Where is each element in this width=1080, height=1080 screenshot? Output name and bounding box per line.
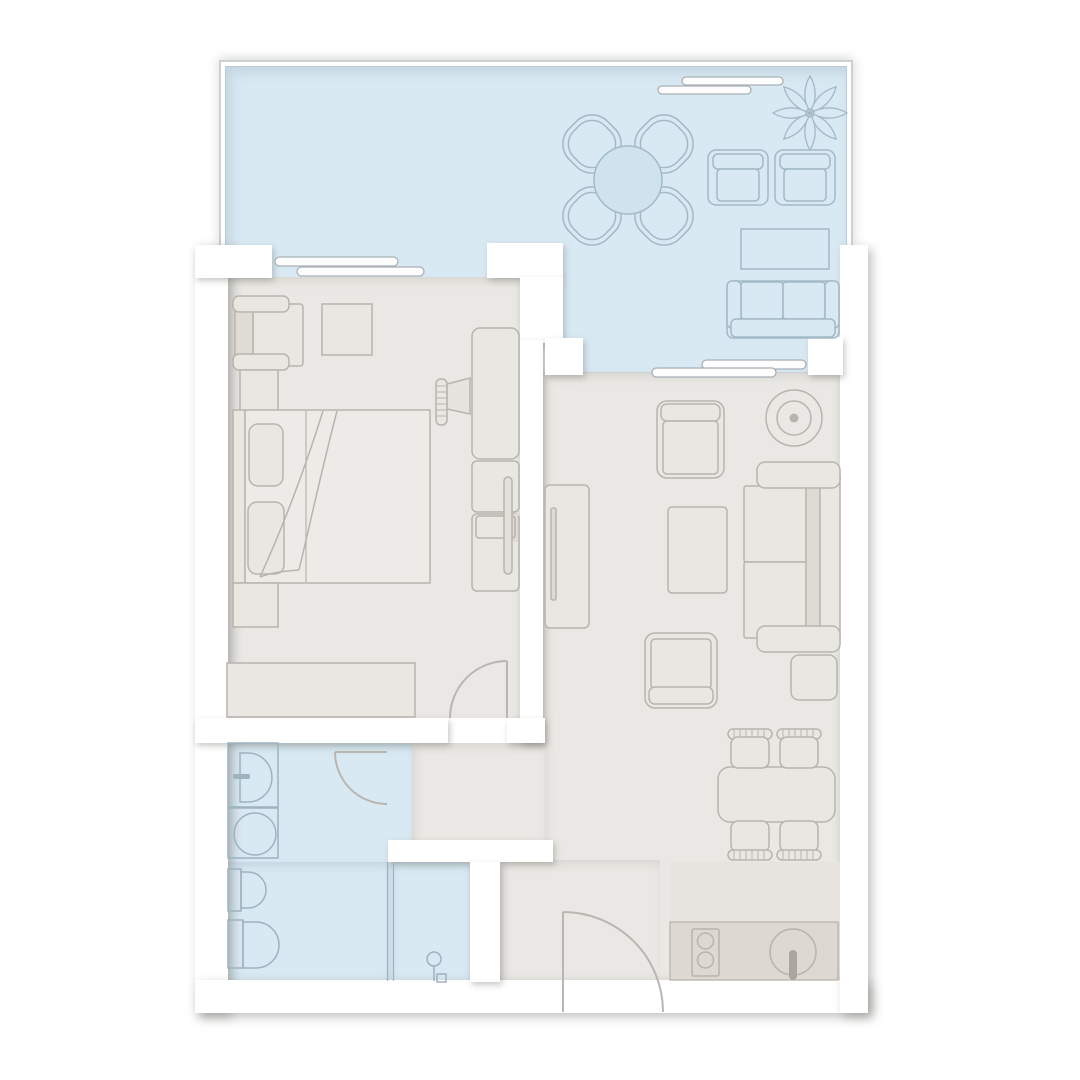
room-bathroom-floor xyxy=(227,743,412,863)
room-entry-floor xyxy=(500,860,660,982)
wall-bedroom-top xyxy=(195,245,272,278)
wall-stub-left xyxy=(545,338,583,375)
wall-bottom xyxy=(195,980,868,1013)
room-bathroom-floor2 xyxy=(227,862,388,982)
wall-divider-upper xyxy=(520,277,563,343)
room-hallway-floor xyxy=(412,743,545,842)
wall-divider-lower xyxy=(520,340,543,743)
wall-bedroom-bathroom xyxy=(195,718,448,743)
shower-floor xyxy=(388,862,470,982)
wall-left xyxy=(195,245,228,1013)
room-bedroom-floor xyxy=(228,277,520,718)
wall-hall-band xyxy=(388,840,553,862)
floor-plan xyxy=(0,0,1080,1080)
wall-stub-right xyxy=(808,337,843,375)
wall-bedroom-door-jamb xyxy=(507,718,545,743)
wall-shower-strip xyxy=(470,862,500,982)
wall-right xyxy=(840,245,868,1013)
wall-mid-top xyxy=(487,243,563,278)
